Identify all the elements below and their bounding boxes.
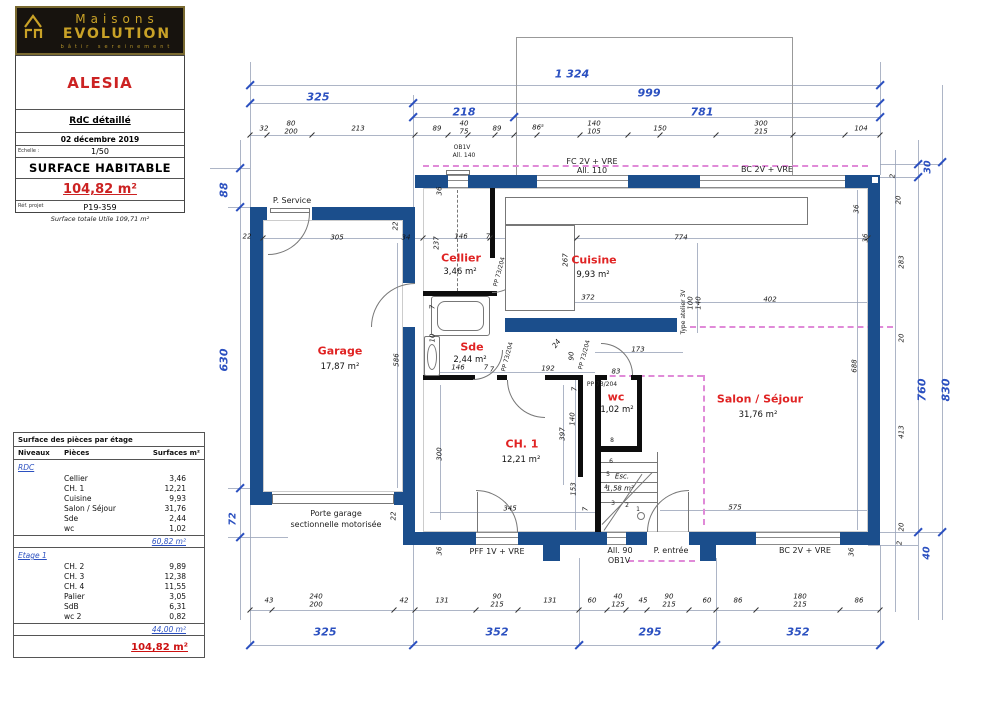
dimension-label: 300 [754,121,767,128]
dimension-label: 131 [435,598,448,605]
floor-plan-drawing: 1 3243259992187813280200213894075OB1VAll… [0,0,1000,706]
annotation-label: P. Service [273,197,311,205]
dimension-label: 300 [437,447,444,460]
annotation-label: sectionnelle motorisée [291,521,382,529]
dimension-label: 146 [454,234,467,241]
dimension-label: 20 [899,334,906,343]
dimension-total-label: 760 [917,379,928,402]
dimension-label: 5 [606,472,610,478]
wall [403,327,415,492]
dimension-label: 3,46 m² [443,268,476,277]
dimension-label: OB1V [454,145,471,151]
dimension-label: 105 [587,129,600,136]
dimension-label: 86⁵ [532,125,544,132]
fixture-outline [505,225,575,311]
dimension-label: 153 [571,482,578,495]
dimension-label: 83 [612,369,621,376]
dimension-label: 89 [433,126,442,133]
dimension-label: 140 [587,121,600,128]
annotation-label: P. entrée [654,547,689,555]
window [448,175,468,188]
dimension-label: 215 [754,129,767,136]
dimension-line [250,610,880,611]
dimension-label: 104 [854,126,867,133]
door-gap [872,177,878,183]
dimension-label: 42 [400,598,409,605]
dimension-label: 372 [581,295,594,302]
annotation-label: BC 2V + VRE [741,166,793,174]
dimension-label: 36 [437,187,444,196]
dimension-label: 200 [284,129,297,136]
dimension-label: 7 [583,507,590,511]
partition-wall [545,375,578,380]
dimension-label: Type atelier 3V [681,290,687,335]
dimension-total-label: 830 [941,379,952,402]
dimension-label: 80 [287,121,296,128]
partition-wall [601,375,607,380]
dimension-label: 12,21 m² [502,456,541,465]
dimension-total-label: 295 [639,627,662,638]
dimension-label: 140 [696,296,703,309]
dimension-label: 22 [391,512,398,521]
dimension-label: 36 [849,548,856,557]
dimension-tick [876,641,885,650]
dimension-label: 237 [434,236,441,249]
detail-line [688,492,689,532]
dimension-label: 2 [890,174,897,178]
wall [689,532,756,545]
wall [312,207,415,220]
ceiling-dashed-line [690,326,893,329]
annotation-label: Porte garage [310,510,362,518]
attic-outline [516,37,793,177]
annotation-label: All. 110 [577,167,607,175]
fixture-outline [270,208,310,213]
dimension-label: 7 [484,365,488,372]
dimension-label: 345 [503,506,516,513]
partition-wall [637,380,642,452]
dimension-line [716,558,717,645]
room-label: Garage [318,346,363,357]
dimension-label: 36 [863,234,870,243]
annotation-label: FC 2V + VRE [566,158,617,166]
dimension-label: 10 [430,334,437,343]
dimension-label: 20 [896,196,903,205]
dimension-line [210,168,250,169]
dimension-label: 31,76 m² [739,411,778,420]
dimension-label: 180 [793,594,806,601]
dimension-line [880,62,881,175]
dimension-label: 213 [351,126,364,133]
dimension-line [240,140,241,620]
dimension-label: 17,87 m² [321,363,360,372]
wall [403,220,415,283]
dimension-label: 1,58 m² [606,486,633,493]
dimension-label: 575 [728,505,741,512]
dimension-label: 2 [625,503,629,509]
door-gap [647,532,689,545]
detail-line [477,492,478,532]
dimension-label: 397 [560,427,567,440]
dimension-line [880,177,920,178]
dimension-total-label: 40 [922,546,932,559]
wall [628,175,700,188]
wall [868,175,880,545]
dimension-label: 89 [493,126,502,133]
window [700,175,845,188]
wall [250,207,267,220]
dimension-label: 200 [309,602,322,609]
dimension-line [413,545,414,643]
dimension-label: 8 [610,438,614,444]
fixture-outline [446,170,470,175]
wall [250,492,272,505]
dimension-label: 283 [899,255,906,268]
ceiling-dashed-line [423,165,868,168]
room-label: Cuisine [571,255,616,266]
fixture-outline [637,512,645,520]
wall [626,532,647,545]
dimension-label: 402 [763,297,776,304]
dimension-label: 774 [674,235,687,242]
dimension-line [579,558,580,645]
dimension-label: 267 [563,253,570,266]
dimension-label: 40 [460,121,469,128]
dimension-label: 140 [570,412,577,425]
room-label: Sde [460,342,483,353]
wall [505,318,677,332]
dimension-label: 240 [309,594,322,601]
dimension-label: 6 [609,459,613,465]
dimension-label: 125 [611,602,624,609]
dimension-label: 22 [243,234,252,241]
dimension-label: 586 [394,353,401,366]
dimension-line [942,85,943,620]
dimension-label: PP 73/204 [587,382,617,388]
dimension-label: 60 [588,598,597,605]
dimension-label: All. 140 [453,153,476,159]
dimension-line [250,505,251,645]
dimension-label: Esc. [615,474,629,481]
dimension-total-label: 352 [787,627,810,638]
dimension-label: 86 [855,598,864,605]
room-label: wc [608,392,625,403]
wall [518,532,607,545]
dimension-total-label: 325 [307,92,330,103]
dimension-label: 215 [662,602,675,609]
dimension-line [413,95,414,207]
detail-line [657,452,658,532]
dimension-label: 45 [639,598,648,605]
dimension-line [868,545,918,546]
room-label: Cellier [441,253,481,264]
dimension-label: 40 [614,594,623,601]
partition-wall [578,375,583,477]
annotation-label: All. 90 [607,547,632,555]
dimension-label: 192 [541,366,554,373]
dimension-label: 413 [899,425,906,438]
ceiling-dashed-line [628,560,695,563]
dimension-line [250,645,880,646]
window [607,532,626,545]
dimension-label: 7 [486,234,490,241]
dimension-label: 305 [330,235,343,242]
dimension-total-label: 325 [314,627,337,638]
fixture-outline [272,494,394,504]
fixture-outline [505,197,808,225]
dimension-label: 75 [460,129,469,136]
dimension-label: 7 [430,305,437,309]
dimension-total-label: 88 [219,182,230,197]
wall [700,545,716,561]
dimension-label: 7 [572,387,579,391]
dimension-total-label: 72 [228,512,238,525]
dimension-label: 43 [265,598,274,605]
dimension-label: 34 [402,235,411,242]
dimension-label: 215 [793,602,806,609]
dimension-line [880,532,942,533]
dimension-label: 146 [451,365,464,372]
dimension-label: 2 [897,541,904,545]
wall [468,175,537,188]
dimension-total-label: 630 [219,349,230,372]
dimension-total-label: 218 [453,107,476,118]
dimension-label: 22 [393,222,400,231]
dimension-total-label: 1 324 [555,69,589,80]
dimension-label: 688 [852,359,859,372]
annotation-label: BC 2V + VRE [779,547,831,555]
wall [250,207,263,505]
partition-wall [595,446,642,452]
detail-line [601,482,657,483]
wall [840,532,880,545]
dimension-label: 90 [493,594,502,601]
dimension-line [880,545,881,645]
dimension-label: 131 [543,598,556,605]
dimension-label: 32 [260,126,269,133]
dimension-label: 150 [653,126,666,133]
dimension-total-label: 352 [486,627,509,638]
window [756,532,840,545]
floor-plan-sheet: Maisons EVOLUTION bâtir sereinement ALES… [0,0,1000,706]
dimension-label: 90 [569,352,576,361]
wall [543,545,560,561]
partition-wall [490,188,495,258]
wall [403,532,476,545]
dimension-label: 1,02 m² [600,406,633,415]
dimension-label: 7 [490,367,494,374]
fixture-outline [437,301,484,331]
room-label: Salon / Séjour [717,394,803,405]
dimension-total-label: 999 [638,88,661,99]
room-label: CH. 1 [506,439,539,450]
annotation-label: PFF 1V + VRE [469,548,524,556]
dimension-label: 215 [490,602,503,609]
dimension-label: 9,93 m² [576,271,609,280]
dimension-label: 3 [611,501,615,507]
window [476,532,518,545]
dimension-label: 100 [688,296,695,309]
dimension-label: 60 [703,598,712,605]
dimension-label: 86 [734,598,743,605]
fixture-outline [427,344,437,370]
dimension-label: 36 [437,547,444,556]
partition-wall [497,375,507,380]
dimension-total-label: 781 [691,107,714,118]
dimension-label: 90 [665,594,674,601]
dimension-label: 36 [854,205,861,214]
dimension-label: 20 [899,523,906,532]
annotation-label: OB1V [608,557,630,565]
dimension-label: 173 [631,347,644,354]
dimension-label: 1 [636,507,640,513]
ceiling-dashed-line [703,375,706,525]
window [537,175,628,188]
dimension-total-label: 30 [923,160,933,173]
